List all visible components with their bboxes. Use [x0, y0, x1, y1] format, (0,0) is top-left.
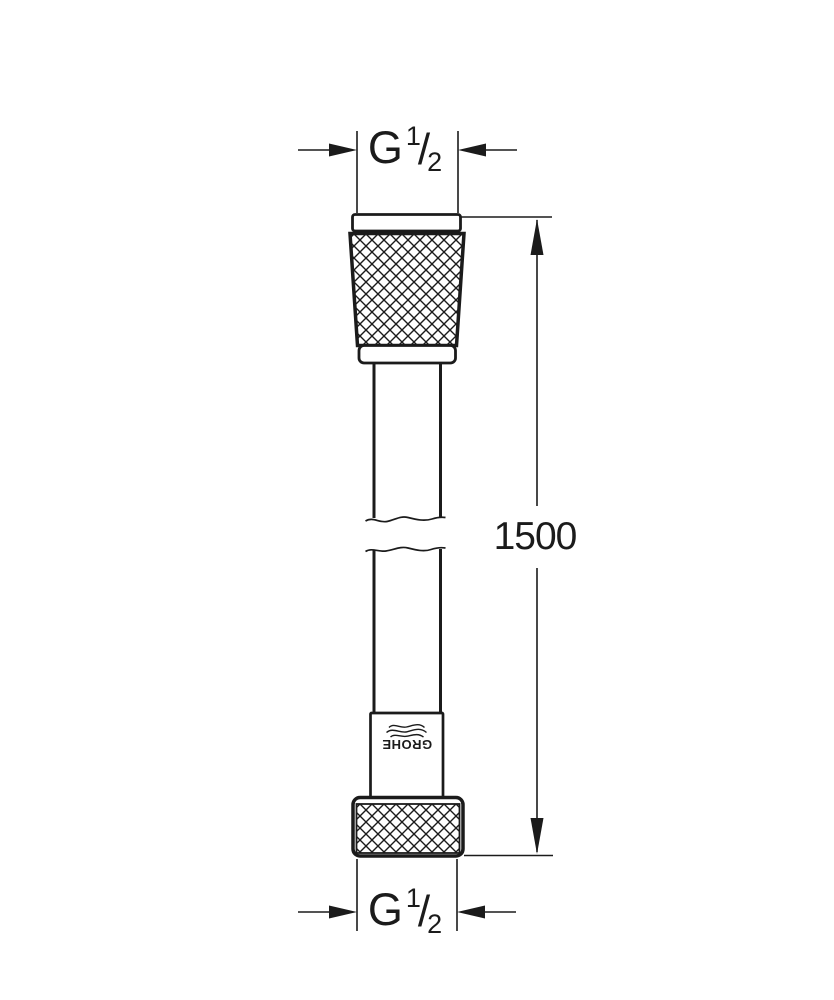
bottom-thread-size-label: G1/2 — [303, 886, 507, 940]
hose-tube — [366, 363, 446, 713]
hose-break-lower-wavy-line — [366, 547, 446, 551]
top-thread-size-label: G1/2 — [303, 124, 507, 178]
top-hose-fitting — [350, 215, 464, 364]
length-dim-down-arrowhead-icon — [531, 818, 544, 854]
hose-length-value: 1500 — [477, 517, 593, 557]
nut-knurl-band — [357, 804, 460, 853]
bottom-knurled-nut — [353, 798, 463, 857]
length-dim-up-arrowhead-icon — [531, 219, 544, 255]
bottom-hose-sleeve — [371, 713, 444, 798]
top-fitting-cap — [353, 215, 461, 232]
top-thread-symbol: G — [368, 122, 403, 173]
shower-hose-technical-drawing: G1/2 1500 GROHE G1/2 — [0, 0, 834, 1000]
top-thread-denominator: 2 — [427, 147, 442, 177]
bottom-thread-symbol: G — [368, 884, 403, 935]
hose-break-upper-wavy-line — [366, 517, 446, 522]
top-fitting-knurled-cone — [350, 234, 464, 346]
bottom-thread-denominator: 2 — [427, 909, 442, 939]
sleeve-body — [371, 713, 444, 798]
brand-wordmark: GROHE — [377, 737, 437, 751]
top-fitting-collar — [359, 346, 456, 364]
